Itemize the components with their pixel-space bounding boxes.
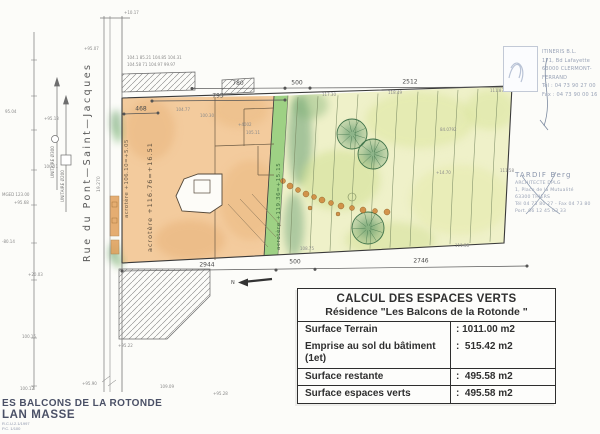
path-dot <box>336 212 340 216</box>
survey-mark: +95.22 <box>118 343 133 348</box>
row-value: : 495.58 m2 <box>450 369 555 386</box>
path-dot <box>329 201 334 206</box>
survey-mark: 108.75 <box>300 246 314 251</box>
vendor-text-line: 171, Bd Lafayette <box>542 57 600 66</box>
stamp-text-line: Port. 06 12 45 03 33 <box>515 208 599 215</box>
survey-mark: 111.38 <box>455 243 469 248</box>
path-dot <box>287 183 293 189</box>
wash-blob <box>114 127 122 143</box>
survey-mark: MGED 123.00 <box>2 192 30 197</box>
hatch-area-bottom <box>119 269 210 339</box>
wash-blob <box>365 92 475 148</box>
row-label: Emprise au sol du bâtiment (1et) <box>298 339 450 368</box>
path-dot <box>350 206 355 211</box>
utility-label-1: UNITAIRE Ø300 <box>50 146 55 178</box>
table-row: Emprise au sol du bâtiment (1et): 515.42… <box>298 339 555 368</box>
table-row: Surface espaces verts: 495.58 m2 <box>298 386 555 403</box>
acrotere-label-1: acrotère +106.10=+5.05 <box>123 139 130 218</box>
table-header: CALCUL DES ESPACES VERTS Résidence "Les … <box>298 289 555 322</box>
survey-mark: 109.09 <box>160 384 174 389</box>
path-dot <box>303 191 309 197</box>
roadside-planters <box>110 196 119 254</box>
path-dot <box>338 203 344 209</box>
table-row-group: Surface restante: 495.58 m2 <box>298 369 555 387</box>
survey-mark: +95.68 <box>14 200 29 205</box>
road-width-note: 19.270 <box>96 176 102 192</box>
table-row: Surface Terrain: 1011.00 m2 <box>298 322 555 339</box>
manhole-circle <box>52 136 59 143</box>
tree <box>352 212 384 244</box>
survey-mark: 100.30 <box>200 113 214 118</box>
dim-label: 780 <box>232 80 244 87</box>
north-label: N <box>231 280 235 286</box>
hatch-strip-1 <box>122 72 195 92</box>
table-subtitle: Résidence "Les Balcons de la Rotonde " <box>300 306 553 318</box>
table-row: Surface restante: 495.58 m2 <box>298 369 555 386</box>
vendor-text-line: ITINERIS B.L. <box>542 48 600 57</box>
utility-label-2: UNITAIRE Ø200 <box>60 170 65 202</box>
row-label: Surface restante <box>298 369 450 386</box>
survey-mark: 104.1 85.21 104.85 104.31 <box>127 55 182 60</box>
survey-mark: 100.21 <box>44 164 58 169</box>
dim-label: 2746 <box>413 258 428 265</box>
wash-blob <box>410 165 510 235</box>
table-row-group: Surface espaces verts: 495.58 m2 <box>298 386 555 403</box>
path-dot <box>384 209 390 215</box>
row-value: : 495.58 m2 <box>450 386 555 403</box>
survey-mark: 100.15 <box>22 334 36 339</box>
path-dot <box>373 209 378 214</box>
dim-label: 2512 <box>402 79 417 86</box>
title-block: ES BALCONS DE LA ROTONDE LAN MASSE R.C.U… <box>2 398 162 431</box>
survey-mark: 111.58 <box>500 168 514 173</box>
survey-mark: 105.11 <box>246 130 260 135</box>
vendor-text-line: Fax : 04 73 90 00 16 <box>542 91 600 100</box>
stamp-text-line: ARCHITECTE DPLG <box>515 180 599 187</box>
acrotere-label-2: acrotère +116.76=+16.51 <box>146 142 154 252</box>
row-value: : 1011.00 m2 <box>450 322 555 339</box>
survey-mark: 104.77 <box>176 107 190 112</box>
survey-mark: 118.49 <box>388 90 402 95</box>
tree <box>358 139 388 169</box>
row-label: Surface espaces verts <box>298 386 450 403</box>
vendor-text-line: 63000 CLERMONT-FERRAND <box>542 65 600 82</box>
survey-mark: -80.14 <box>2 239 15 244</box>
acrotere-label-3: acrotère +119.36=+15.15 <box>275 163 282 250</box>
survey-mark: +4002 <box>238 122 252 127</box>
survey-mark: +95.28 <box>213 391 228 396</box>
drawing-title: LAN MASSE <box>2 409 162 421</box>
dim-label: 795 <box>212 93 224 100</box>
survey-mark: +95.07 <box>84 46 99 51</box>
title-block-note: P.C. 1/100 <box>2 426 162 431</box>
project-title: ES BALCONS DE LA ROTONDE <box>2 398 162 409</box>
stamp-text-line: Tél 04 73 80 27 - Fax 04 73 80 <box>515 201 599 208</box>
vendor-block-lines: ITINERIS B.L.171, Bd Lafayette63000 CLER… <box>542 46 600 99</box>
survey-mark: +95.90 <box>82 381 97 386</box>
survey-mark: 95.04 <box>5 109 17 114</box>
vendor-logo-icon <box>503 46 538 92</box>
stamp-text-line: 63300 THIERS <box>515 194 599 201</box>
table-row-group: Surface Terrain: 1011.00 m2Emprise au so… <box>298 322 555 369</box>
survey-mark: 100.12 <box>20 386 34 391</box>
utility-arrowhead <box>64 96 69 104</box>
street-name: Rue du Pont—Saint—Jacques <box>82 62 93 262</box>
site-plan-sheet: 780 500 2512 795 468 2944 500 2746 N Rue… <box>0 0 600 434</box>
survey-mark: 104.58 71 104.97 99.97 <box>127 62 176 67</box>
survey-mark: +20.03 <box>28 272 43 277</box>
wash-blob <box>155 220 225 260</box>
survey-mark: 84.0792 <box>440 127 457 132</box>
table-body: Surface Terrain: 1011.00 m2Emprise au so… <box>298 322 555 403</box>
north-arrow: N <box>231 279 272 287</box>
row-value: : 515.42 m2 <box>450 339 555 368</box>
survey-mark: +95.13 <box>44 116 59 121</box>
manhole-square <box>61 155 71 165</box>
path-dot <box>312 195 317 200</box>
utility-arrowhead <box>55 78 60 86</box>
stamp-text-line: 1, Place de la Mutualité <box>515 187 599 194</box>
path-dot <box>319 197 325 203</box>
vendor-text-line: Tél : 04 73 90 27 00 <box>542 82 600 91</box>
dim-label: 2944 <box>199 262 214 269</box>
vendor-block: ITINERIS B.L.171, Bd Lafayette63000 CLER… <box>503 46 600 99</box>
espaces-verts-table: CALCUL DES ESPACES VERTS Résidence "Les … <box>297 288 556 404</box>
path-dot <box>308 206 312 210</box>
survey-mark: +14.70 <box>436 170 451 175</box>
stamp-text-line: TARDIF Berg <box>515 171 599 180</box>
dim-label: 500 <box>291 80 303 87</box>
dim-label: 468 <box>135 106 147 113</box>
north-arrowhead <box>238 279 248 287</box>
survey-mark: 117.30 <box>322 92 336 97</box>
survey-mark: +10.17 <box>124 10 139 15</box>
architect-stamp: TARDIF BergARCHITECTE DPLG1, Place de la… <box>515 171 599 215</box>
row-label: Surface Terrain <box>298 322 450 339</box>
table-title: CALCUL DES ESPACES VERTS <box>300 293 553 305</box>
path-dot <box>360 207 366 213</box>
path-dot <box>296 188 301 193</box>
dim-label: 500 <box>289 259 301 266</box>
